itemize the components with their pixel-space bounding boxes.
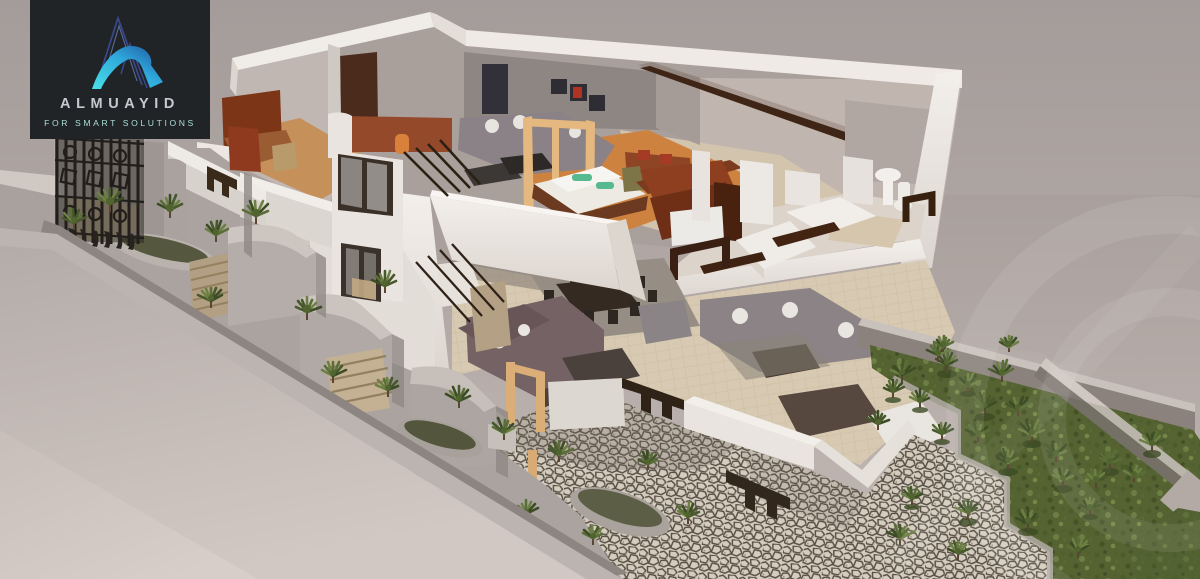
svg-text:FOR SMART SOLUTIONS: FOR SMART SOLUTIONS bbox=[44, 118, 196, 128]
svg-text:ALMUAYID: ALMUAYID bbox=[60, 96, 180, 112]
